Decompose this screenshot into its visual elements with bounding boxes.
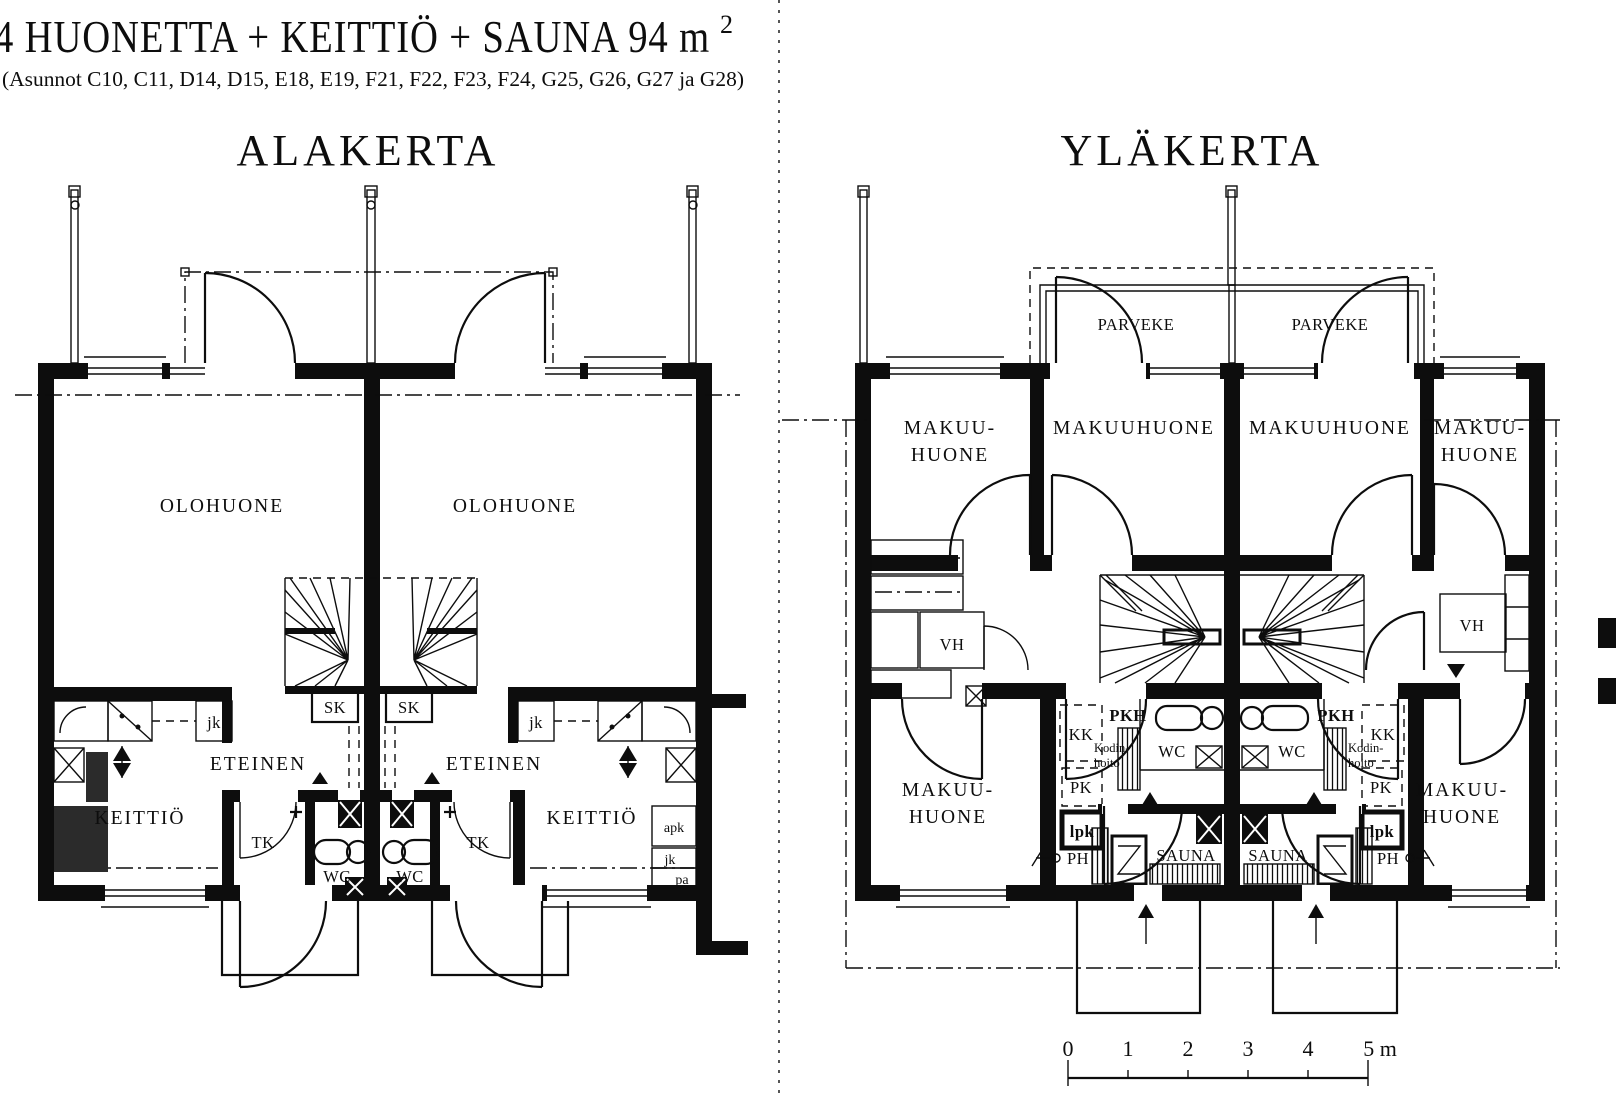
room-label-makuuhuone-tl-2: HUONE — [911, 445, 989, 466]
room-label-makuuhuone-br-1: MAKUU- — [1416, 780, 1508, 801]
alakerta-plan: ALAKERTA — [15, 126, 748, 987]
label-jk-2: jk — [664, 853, 676, 868]
edge-wall-fragment — [1598, 618, 1616, 648]
label-ph-right: PH — [1377, 849, 1399, 868]
stairs-alakerta — [285, 578, 477, 694]
room-label-makuuhuone-bl-1: MAKUU- — [902, 780, 994, 801]
scale-tick-0: 0 — [1063, 1036, 1074, 1061]
apartment-list: (Asunnot C10, C11, D14, D15, E18, E19, F… — [2, 67, 744, 91]
room-label-keittio-left: KEITTIÖ — [95, 808, 186, 829]
label-kodinhoito-left-1: Kodin- — [1094, 741, 1129, 755]
label-apk: apk — [664, 821, 684, 836]
room-label-tk-right: TK — [467, 833, 490, 852]
room-label-makuuhuone-mr: MAKUUHUONE — [1249, 418, 1411, 439]
room-label-olohuone-right: OLOHUONE — [453, 496, 577, 517]
label-wc-upper-left: WC — [1158, 742, 1186, 761]
room-label-tk-left: TK — [252, 833, 275, 852]
room-label-olohuone-left: OLOHUONE — [160, 496, 284, 517]
porch-right — [432, 901, 568, 975]
floor-plan-page: 4 HUONETTA + KEITTIÖ + SAUNA 94 m 2 (Asu… — [0, 0, 1616, 1093]
utility-left-unit: KK PKH Kodin- hoito WC PK lpk SAUNA PH — [1032, 699, 1224, 884]
label-ph-left: PH — [1067, 849, 1089, 868]
alakerta-title: ALAKERTA — [237, 126, 500, 175]
label-wc-upper-right: WC — [1278, 742, 1306, 761]
vh-right-area: VH — [1366, 575, 1529, 678]
label-lpk-right: lpk — [1370, 822, 1395, 841]
scale-tick-1: 1 — [1123, 1036, 1134, 1061]
header: 4 HUONETTA + KEITTIÖ + SAUNA 94 m 2 (Asu… — [0, 10, 744, 91]
label-kodinhoito-right-1: Kodin- — [1348, 741, 1383, 755]
floor-plan-drawing: 4 HUONETTA + KEITTIÖ + SAUNA 94 m 2 (Asu… — [0, 0, 1616, 1093]
label-pkh-right: PKH — [1317, 706, 1354, 725]
scale-bar: 0 1 2 3 4 5 m — [1063, 1036, 1397, 1086]
alakerta-walls — [38, 363, 748, 955]
room-label-makuuhuone-tl-1: MAKUU- — [904, 418, 996, 439]
room-label-vh-left: VH — [940, 635, 965, 654]
room-label-wc-left: WC — [323, 867, 351, 886]
label-pk-left: PK — [1070, 778, 1092, 797]
room-label-makuuhuone-bl-2: HUONE — [909, 807, 987, 828]
label-jk-left: jk — [206, 713, 221, 732]
label-sk-left: SK — [324, 698, 346, 717]
page-title: 4 HUONETTA + KEITTIÖ + SAUNA 94 m — [0, 11, 710, 62]
edge-wall-fragment — [1598, 678, 1616, 704]
terrace-lower-right — [1273, 901, 1397, 1013]
room-label-makuuhuone-br-2: HUONE — [1423, 807, 1501, 828]
room-label-wc-right: WC — [396, 867, 424, 886]
facade-posts — [69, 186, 698, 363]
room-label-eteinen-left: ETEINEN — [210, 754, 306, 775]
scale-tick-5m: 5 m — [1363, 1036, 1397, 1061]
kitchen-right: jk KEITTIÖ apk jk pa — [518, 701, 696, 888]
room-label-keittio-right: KEITTIÖ — [547, 808, 638, 829]
room-label-makuuhuone-tr-1: MAKUU- — [1434, 418, 1526, 439]
scale-tick-3: 3 — [1243, 1036, 1254, 1061]
label-pk-right: PK — [1370, 778, 1392, 797]
porch-left — [222, 901, 358, 975]
kitchen-left: jk KEITTIÖ — [54, 701, 232, 872]
scale-tick-4: 4 — [1303, 1036, 1314, 1061]
label-jk-right: jk — [528, 713, 543, 732]
label-sk-right: SK — [398, 698, 420, 717]
label-kk-left: KK — [1069, 725, 1094, 744]
room-label-sauna-left: SAUNA — [1156, 846, 1215, 865]
ylakerta-plan: YLÄKERTA PARVEKE PARVEKE — [782, 126, 1616, 1013]
label-lpk-left: lpk — [1070, 822, 1095, 841]
room-label-vh-right: VH — [1460, 616, 1485, 635]
room-label-sauna-right: SAUNA — [1248, 846, 1307, 865]
label-pa: pa — [675, 873, 689, 888]
room-label-eteinen-right: ETEINEN — [446, 754, 542, 775]
page-title-superscript: 2 — [720, 10, 733, 39]
utility-right-unit: KK PKH Kodin- hoito WC PK lpk SAUNA PH — [1240, 699, 1434, 884]
label-pkh-left: PKH — [1109, 706, 1146, 725]
facade-posts-upper — [858, 186, 1237, 363]
entry-arrows — [1138, 904, 1324, 944]
room-label-makuuhuone-ml: MAKUUHUONE — [1053, 418, 1215, 439]
ylakerta-title: YLÄKERTA — [1061, 126, 1324, 175]
scale-tick-2: 2 — [1183, 1036, 1194, 1061]
room-label-makuuhuone-tr-2: HUONE — [1441, 445, 1519, 466]
